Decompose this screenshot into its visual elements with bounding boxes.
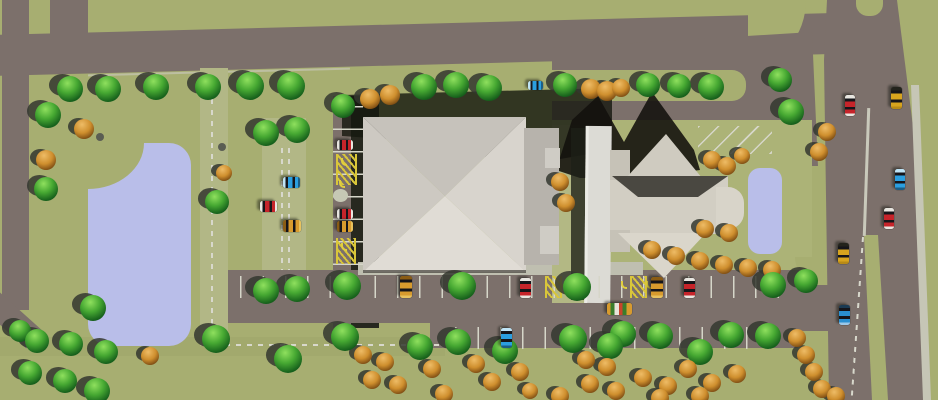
annex-notch-1: [545, 148, 560, 168]
tree-green: [53, 369, 77, 393]
tree-orange: [728, 365, 746, 383]
car-red-west-stall-2: [337, 209, 353, 219]
tree-orange: [598, 358, 616, 376]
tree-green: [59, 332, 83, 356]
tree-green: [443, 72, 469, 98]
handicap-stall-lot-2: [630, 276, 647, 298]
truck-yellow-branch: [838, 243, 849, 264]
tree-orange: [74, 119, 94, 139]
tree-green: [80, 295, 106, 321]
tree-orange: [805, 363, 823, 381]
tree-orange: [522, 383, 538, 399]
tree-orange: [511, 363, 529, 381]
tree-green: [253, 120, 279, 146]
tree-orange: [810, 143, 828, 161]
tree-green: [794, 269, 818, 293]
van-orange-island: [283, 220, 301, 232]
tree-green: [195, 74, 221, 100]
car-blue-right-road: [895, 169, 905, 190]
tree-green: [647, 323, 673, 349]
church-wing-nw: [610, 150, 630, 180]
car-red-right-road: [845, 95, 855, 116]
tree-orange: [551, 387, 569, 400]
car-red-right-road-2: [884, 208, 894, 229]
tree-orange: [734, 148, 750, 164]
car-red-lot-1: [520, 278, 531, 298]
tree-green: [236, 72, 264, 100]
van-multicolor-aisle: [607, 303, 632, 315]
tree-green: [333, 272, 361, 300]
tree-orange: [389, 376, 407, 394]
car-red-island: [260, 201, 277, 212]
tree-green: [563, 273, 591, 301]
tree-green: [94, 340, 118, 364]
tree-green: [274, 345, 302, 373]
tree-orange: [551, 173, 569, 191]
tree-green: [755, 323, 781, 349]
tree-green: [778, 99, 804, 125]
shrub-dot: [218, 143, 226, 151]
tree-orange: [634, 369, 652, 387]
tree-green: [636, 73, 660, 97]
tree-green: [559, 325, 587, 353]
shrub-dot: [96, 133, 104, 141]
van-blue-branch: [839, 305, 850, 325]
car-blue-top-road: [528, 81, 543, 90]
tree-green: [95, 76, 121, 102]
tree-orange: [720, 224, 738, 242]
stall-row-lot-top: [240, 276, 788, 298]
handicap-stall-west-2: [336, 238, 356, 264]
tree-orange: [818, 123, 836, 141]
tree-orange: [577, 351, 595, 369]
handicap-symbol: [339, 180, 345, 188]
tree-orange: [715, 256, 733, 274]
car-blue-lot: [501, 328, 512, 348]
road-left: [2, 0, 29, 310]
tree-orange: [363, 371, 381, 389]
tree-green: [284, 276, 310, 302]
tree-green: [57, 76, 83, 102]
tree-orange: [483, 373, 501, 391]
tree-orange: [691, 252, 709, 270]
car-red-west-stall-1: [337, 140, 353, 150]
tree-green: [768, 68, 792, 92]
tree-green: [253, 278, 279, 304]
tree-orange: [423, 360, 441, 378]
road-stub-north: [50, 0, 88, 40]
tree-green: [760, 272, 786, 298]
tree-orange: [354, 346, 372, 364]
tree-green: [25, 329, 49, 353]
tree-green: [18, 361, 42, 385]
tree-green: [667, 74, 691, 98]
tree-green: [35, 102, 61, 128]
tree-green: [202, 325, 230, 353]
tree-orange: [607, 382, 625, 400]
tree-orange: [360, 89, 380, 109]
tree-green: [284, 117, 310, 143]
tree-orange: [827, 387, 845, 400]
tree-orange: [36, 150, 56, 170]
tree-orange: [788, 329, 806, 347]
tree-green: [698, 74, 724, 100]
tree-orange: [612, 79, 630, 97]
van-orange-lot-1: [400, 276, 412, 298]
tree-orange: [651, 389, 669, 400]
tree-orange: [718, 157, 736, 175]
tree-orange: [380, 85, 400, 105]
handicap-symbol: [621, 281, 627, 289]
handicap-symbol: [341, 243, 347, 251]
tree-green: [331, 323, 359, 351]
tree-green: [34, 177, 58, 201]
tree-green: [84, 378, 110, 400]
handicap-symbol: [341, 158, 347, 166]
tree-green: [331, 94, 355, 118]
tree-orange: [696, 220, 714, 238]
tree-orange: [376, 353, 394, 371]
truck-yellow-right-road: [891, 87, 902, 109]
site-plan-render: [0, 0, 938, 400]
lot-exit-drive: [792, 285, 840, 331]
tree-green: [448, 272, 476, 300]
tree-green: [553, 73, 577, 97]
car-red-lot-2: [684, 278, 695, 298]
tree-orange: [643, 241, 661, 259]
dash-island-left: [281, 148, 283, 270]
dash-island-right: [288, 148, 290, 270]
tree-orange: [739, 259, 757, 277]
tree-green: [407, 334, 433, 360]
tree-orange: [679, 360, 697, 378]
tree-green: [445, 329, 471, 355]
tree-orange: [667, 247, 685, 265]
tree-orange: [435, 385, 453, 400]
tree-orange: [691, 387, 709, 400]
shrub-light: [333, 189, 348, 202]
tree-green: [476, 75, 502, 101]
tree-green: [597, 333, 623, 359]
annex-notch-2: [540, 226, 559, 254]
van-orange-west-stall: [337, 221, 353, 232]
car-blue-island: [283, 177, 300, 188]
tree-orange: [797, 346, 815, 364]
tree-green: [718, 322, 744, 348]
tree-orange: [557, 194, 575, 212]
tree-green: [411, 74, 437, 100]
tree-green: [277, 72, 305, 100]
tree-orange: [141, 347, 159, 365]
van-orange-lot-2: [651, 277, 663, 298]
tree-orange: [467, 355, 485, 373]
tree-orange: [216, 165, 232, 181]
tree-green: [143, 74, 169, 100]
tree-orange: [581, 375, 599, 393]
tree-green: [205, 190, 229, 214]
pond-right: [748, 168, 782, 254]
